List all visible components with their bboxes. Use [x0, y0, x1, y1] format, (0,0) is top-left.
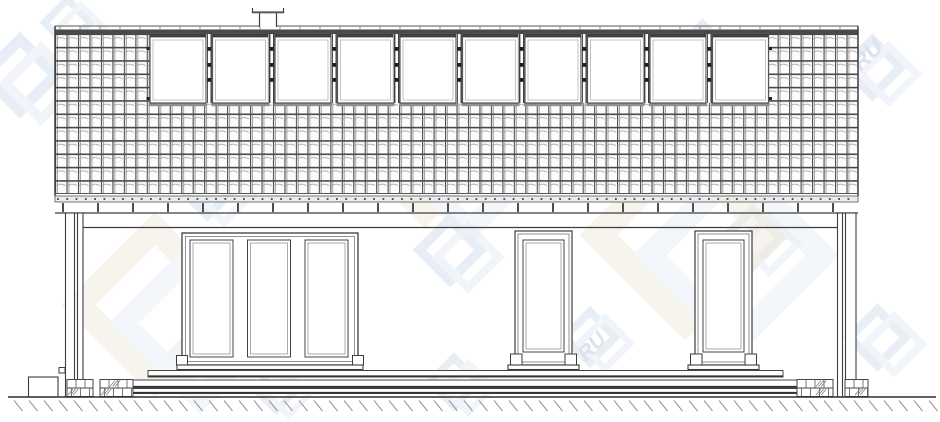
rafter-tail	[342, 203, 344, 212]
ground-hatch	[224, 401, 233, 412]
rafter-tail	[692, 203, 694, 212]
roof-window-head	[275, 34, 331, 37]
hinge-mark	[457, 78, 461, 82]
roof-window	[587, 34, 645, 106]
rafter-tail	[132, 203, 134, 212]
roof-window-frame	[275, 34, 331, 103]
roof-window	[712, 34, 770, 106]
ground-hatch	[569, 401, 578, 412]
roof-window-mullion	[456, 34, 463, 103]
ground-hatch	[239, 401, 248, 412]
ground-hatch	[164, 401, 173, 412]
hinge-mark	[457, 63, 461, 67]
rafter-tail	[237, 203, 239, 212]
ground-hatch	[14, 401, 23, 412]
roof-window-mullion	[269, 34, 276, 103]
rafter-tail	[447, 203, 449, 212]
roof-window-head	[463, 34, 519, 37]
roof-window-head	[213, 34, 269, 37]
ground-hatch	[179, 401, 188, 412]
roof-window-frame	[463, 34, 519, 103]
ground-hatch	[389, 401, 398, 412]
ground-hatch	[629, 401, 638, 412]
ground-hatch	[434, 401, 443, 412]
hinge-mark	[582, 63, 586, 67]
ground-hatch	[509, 401, 518, 412]
hinge-mark	[520, 63, 524, 67]
ground-hatch	[584, 401, 593, 412]
jamb-foot	[511, 354, 523, 365]
roof-window-head	[713, 34, 769, 37]
ground-hatch	[359, 401, 368, 412]
veranda-post	[78, 213, 84, 397]
flashing-mark	[769, 47, 772, 50]
hinge-mark	[520, 47, 524, 51]
jamb-foot	[353, 356, 364, 366]
rafter-tail	[762, 203, 764, 212]
watermark-logo	[849, 309, 922, 372]
hinge-mark	[582, 78, 586, 82]
rafter-tail	[482, 203, 484, 212]
masonry-pier	[845, 380, 868, 397]
rafter-tail	[797, 203, 799, 212]
hinge-mark	[332, 47, 336, 51]
jamb-foot	[745, 354, 757, 365]
rafter-tail	[552, 203, 554, 212]
roof-window-frame	[525, 34, 581, 103]
ground-hatch	[794, 401, 803, 412]
ground-hatch	[344, 401, 353, 412]
ground-hatch	[854, 401, 863, 412]
ground-hatch	[899, 401, 908, 412]
ground-box	[29, 377, 59, 397]
ground-hatch	[689, 401, 698, 412]
ground-hatch	[764, 401, 773, 412]
terrace-step	[107, 389, 810, 394]
hinge-mark	[645, 47, 649, 51]
jamb-foot	[565, 354, 577, 365]
rafter-tail	[587, 203, 589, 212]
ridge-capping	[55, 30, 858, 34]
terrace-step	[128, 380, 797, 388]
ground-hatch	[614, 401, 623, 412]
hinge-mark	[395, 47, 399, 51]
rafter-tail	[657, 203, 659, 212]
roof-window-head	[525, 34, 581, 37]
flashing-mark	[147, 47, 150, 50]
post-bracket	[59, 368, 65, 374]
roof-window-frame	[650, 34, 706, 103]
ground-hatch	[524, 401, 533, 412]
roof	[55, 8, 858, 213]
ground-hatch	[929, 401, 938, 412]
rafter-tail	[517, 203, 519, 212]
roof-window	[337, 34, 395, 106]
ground-hatch	[104, 401, 113, 412]
ground-hatch	[809, 401, 818, 412]
roof-window-head	[400, 34, 456, 37]
ground-hatch	[749, 401, 758, 412]
ground-hatch	[674, 401, 683, 412]
ground-hatch	[644, 401, 653, 412]
door-glass-panel	[523, 240, 564, 352]
roof-window	[212, 34, 270, 106]
ground-hatch	[839, 401, 848, 412]
door-glass-panel	[305, 240, 348, 357]
ground-hatch	[554, 401, 563, 412]
ground-hatch	[134, 401, 143, 412]
hinge-mark	[520, 78, 524, 82]
veranda-post	[66, 213, 75, 397]
roof-window-frame	[400, 34, 456, 103]
flashing-mark	[147, 97, 150, 100]
elevation-drawing: RURURU	[0, 0, 940, 422]
rafter-tail	[832, 203, 834, 212]
rafter-tail	[622, 203, 624, 212]
hinge-mark	[457, 47, 461, 51]
ground-hatch	[884, 401, 893, 412]
flashing-mark	[769, 97, 772, 100]
ground-hatch	[779, 401, 788, 412]
ground-hatch	[59, 401, 68, 412]
roof-window-mullion	[581, 34, 588, 103]
ground-hatch	[659, 401, 668, 412]
ground-hatch	[374, 401, 383, 412]
ground-hatch	[89, 401, 98, 412]
door-glass-panel	[190, 240, 233, 357]
ground-hatch	[869, 401, 878, 412]
ground-hatch	[719, 401, 728, 412]
rafter-tail	[727, 203, 729, 212]
ground-hatch	[539, 401, 548, 412]
hinge-mark	[332, 63, 336, 67]
roof-window-mullion	[706, 34, 713, 103]
hinge-mark	[707, 78, 711, 82]
roof-window-frame	[213, 34, 269, 103]
roof-window	[462, 34, 520, 106]
single-door	[508, 231, 579, 370]
masonry-pier	[67, 380, 93, 397]
roof-window-frame	[338, 34, 394, 103]
rafter-tail	[272, 203, 274, 212]
rafter-tail	[412, 203, 414, 212]
hinge-mark	[207, 47, 211, 51]
roof-window-head	[650, 34, 706, 37]
ground-hatch	[314, 401, 323, 412]
masonry-pier	[797, 380, 833, 397]
hinge-mark	[270, 63, 274, 67]
hinge-mark	[645, 78, 649, 82]
rafter-tail	[97, 203, 99, 212]
roof-window-frame	[713, 34, 769, 103]
roof-window-head	[150, 34, 206, 37]
rafter-tail	[62, 203, 64, 212]
roof-window	[399, 34, 457, 106]
elevation-sheet: RURURU	[0, 0, 940, 422]
hinge-mark	[582, 47, 586, 51]
roof-window	[149, 34, 207, 106]
roof-window-frame	[588, 34, 644, 103]
rafter-tail	[307, 203, 309, 212]
hinge-mark	[270, 78, 274, 82]
hinge-mark	[395, 78, 399, 82]
masonry-pier	[100, 380, 133, 397]
roof-window-frame	[150, 34, 206, 103]
terrace-step	[148, 371, 783, 378]
ground-hatch	[254, 401, 263, 412]
door-sill	[177, 365, 363, 370]
ground-hatch	[419, 401, 428, 412]
veranda-post	[838, 213, 843, 397]
veranda-post	[846, 213, 857, 397]
door-glass-panel	[248, 240, 291, 357]
hinge-mark	[207, 78, 211, 82]
roof-window-mullion	[394, 34, 401, 103]
ground-hatch	[44, 401, 53, 412]
roof-window-mullion	[331, 34, 338, 103]
ground-hatch	[734, 401, 743, 412]
roof-window	[649, 34, 707, 106]
ground-hatch	[914, 401, 923, 412]
hinge-mark	[207, 63, 211, 67]
jamb-foot	[177, 356, 188, 366]
hinge-mark	[395, 63, 399, 67]
ground-hatch	[404, 401, 413, 412]
ground-hatch	[119, 401, 128, 412]
roof-window-mullion	[644, 34, 651, 103]
single-door	[688, 231, 759, 370]
rafter-tail	[167, 203, 169, 212]
ground-hatch	[599, 401, 608, 412]
roof-window-mullion	[519, 34, 526, 103]
door-glass-panel	[703, 240, 744, 352]
hinge-mark	[270, 47, 274, 51]
roof-window-mullion	[206, 34, 213, 103]
rafter-tail	[202, 203, 204, 212]
rafter-tail	[377, 203, 379, 212]
ground-hatch	[824, 401, 833, 412]
hinge-mark	[707, 47, 711, 51]
ground-hatch	[29, 401, 38, 412]
hinge-mark	[645, 63, 649, 67]
door-sill	[508, 365, 579, 370]
hinge-mark	[332, 78, 336, 82]
door-sill	[688, 365, 759, 370]
roof-window-head	[588, 34, 644, 37]
jamb-foot	[691, 354, 703, 365]
hinge-mark	[707, 63, 711, 67]
roof-window	[274, 34, 332, 106]
roof-window	[524, 34, 582, 106]
ground-hatch	[74, 401, 83, 412]
roof-window-head	[338, 34, 394, 37]
ground-hatch	[704, 401, 713, 412]
ground-hatch	[209, 401, 218, 412]
ground-hatch	[494, 401, 503, 412]
ground-hatch	[149, 401, 158, 412]
ground-hatch	[329, 401, 338, 412]
triple-patio-door	[177, 233, 364, 370]
